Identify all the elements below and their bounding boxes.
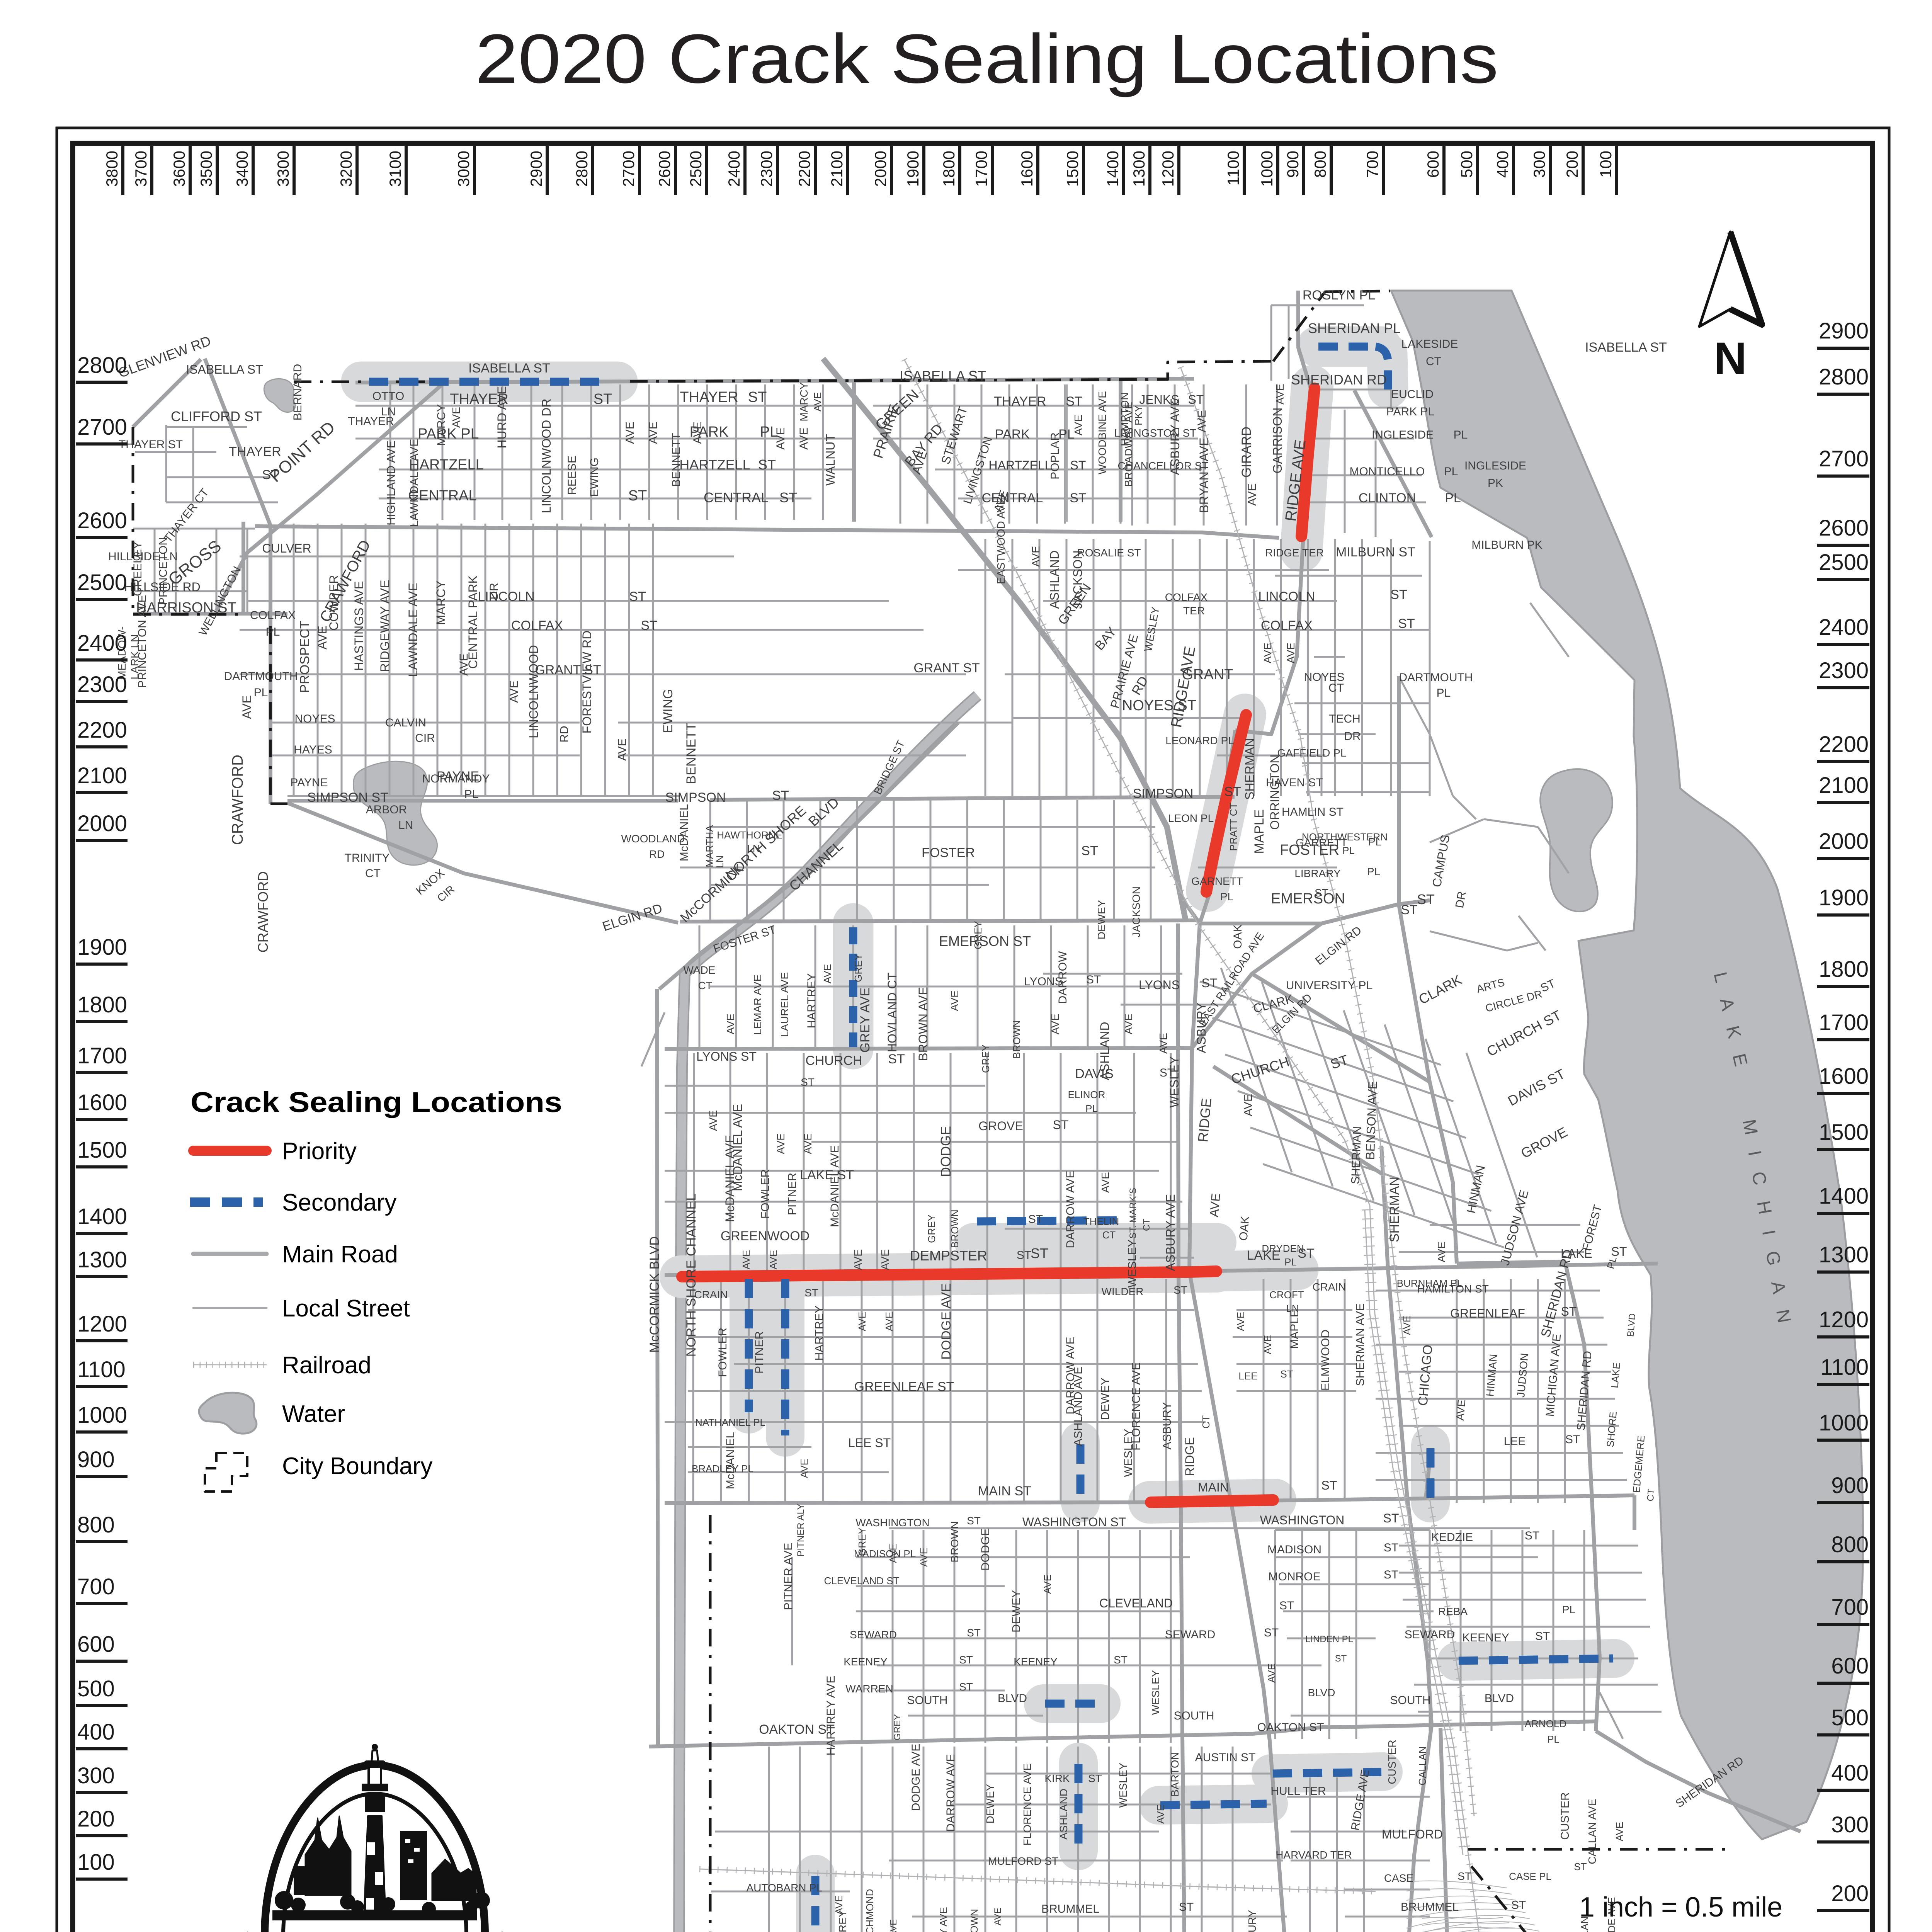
svg-text:CHURCH: CHURCH [805, 1053, 862, 1068]
svg-text:WESLEY: WESLEY [1167, 1056, 1181, 1107]
svg-text:PL: PL [1562, 1604, 1575, 1616]
svg-text:PAYNE: PAYNE [290, 776, 328, 789]
svg-text:MULFORD ST: MULFORD ST [988, 1855, 1058, 1867]
svg-text:ST: ST [1401, 903, 1417, 917]
svg-text:COLFAX: COLFAX [1261, 618, 1313, 633]
svg-text:2000: 2000 [77, 811, 127, 836]
svg-text:AVE: AVE [798, 427, 810, 450]
svg-text:AVE: AVE [1285, 643, 1297, 663]
svg-text:1 inch = 0.5 mile: 1 inch = 0.5 mile [1579, 1892, 1782, 1923]
svg-text:Railroad: Railroad [282, 1352, 371, 1379]
svg-text:WASHINGTON: WASHINGTON [1260, 1513, 1345, 1527]
svg-text:CT: CT [1141, 1219, 1152, 1231]
svg-text:AVE: AVE [852, 1249, 864, 1270]
svg-text:LARK LN: LARK LN [129, 634, 141, 680]
svg-text:GREY AVE: GREY AVE [858, 988, 872, 1053]
svg-text:TRINITY: TRINITY [345, 852, 390, 864]
svg-text:2800: 2800 [1819, 364, 1869, 389]
svg-text:BRUMMEL: BRUMMEL [1401, 1901, 1459, 1913]
svg-text:LAKE ST: LAKE ST [800, 1168, 854, 1182]
svg-text:2020 Crack Sealing Locations: 2020 Crack Sealing Locations [475, 20, 1498, 98]
svg-text:PL: PL [1437, 687, 1451, 699]
svg-text:600: 600 [77, 1632, 115, 1657]
svg-text:ROSALIE ST: ROSALIE ST [1077, 547, 1141, 559]
svg-text:DR: DR [1344, 730, 1361, 743]
svg-text:ST: ST [1088, 1772, 1102, 1784]
svg-text:COWPER: COWPER [327, 575, 341, 631]
svg-text:McDANIEL AVE: McDANIEL AVE [723, 1135, 737, 1222]
svg-text:600: 600 [1424, 151, 1442, 178]
svg-text:LIBRARY: LIBRARY [1294, 867, 1341, 879]
svg-text:CT: CT [1200, 1415, 1212, 1429]
svg-text:400: 400 [1831, 1760, 1869, 1786]
svg-text:REESE: REESE [566, 456, 578, 495]
svg-text:ISABELLA ST: ISABELLA ST [186, 362, 263, 376]
svg-text:2100: 2100 [77, 763, 127, 788]
svg-text:AVE: AVE [1454, 1399, 1468, 1421]
svg-text:ORRINGTON: ORRINGTON [1268, 755, 1282, 830]
svg-text:CALVIN: CALVIN [385, 716, 426, 729]
svg-text:BENSON AVE: BENSON AVE [1363, 1081, 1379, 1160]
svg-text:UNIVERSITY PL: UNIVERSITY PL [1286, 979, 1373, 992]
svg-text:THAYER: THAYER [348, 415, 394, 428]
svg-text:PL: PL [1444, 465, 1458, 478]
svg-text:LAUREL AVE: LAUREL AVE [779, 972, 791, 1037]
svg-text:500: 500 [1458, 151, 1476, 178]
svg-text:ISABELLA ST: ISABELLA ST [1585, 340, 1667, 355]
svg-text:ST: ST [1611, 1245, 1627, 1259]
svg-text:HARVARD TER: HARVARD TER [1276, 1849, 1352, 1861]
svg-text:AVE: AVE [856, 1312, 868, 1331]
svg-text:AVE: AVE [616, 738, 629, 761]
svg-text:SHERIDAN RD: SHERIDAN RD [1291, 372, 1387, 388]
svg-text:LAWNDALE AVE: LAWNDALE AVE [408, 439, 421, 527]
svg-text:CRAWFORD: CRAWFORD [229, 755, 246, 845]
svg-text:RICHMOND: RICHMOND [864, 1889, 876, 1932]
svg-text:WILDER: WILDER [1102, 1286, 1144, 1298]
svg-text:3300: 3300 [274, 151, 292, 187]
svg-text:PKY: PKY [1133, 405, 1144, 425]
svg-text:HARTZELL: HARTZELL [988, 458, 1051, 472]
svg-text:LEON PL: LEON PL [1168, 812, 1214, 824]
svg-text:MAIN ST: MAIN ST [978, 1484, 1031, 1498]
svg-text:ST: ST [1114, 1654, 1128, 1666]
svg-text:HARTREY: HARTREY [805, 973, 818, 1029]
svg-text:KIRK: KIRK [1044, 1772, 1070, 1784]
svg-text:3600: 3600 [170, 151, 188, 187]
svg-text:AVE: AVE [1274, 384, 1286, 405]
svg-text:1000: 1000 [1258, 151, 1276, 187]
svg-text:ST: ST [801, 1076, 815, 1088]
svg-text:BROWN: BROWN [949, 1209, 961, 1248]
svg-text:PL: PL [254, 686, 268, 699]
svg-text:AVE: AVE [798, 1459, 810, 1478]
svg-text:BLVD: BLVD [1308, 1687, 1335, 1699]
svg-text:SHERMAN: SHERMAN [1387, 1177, 1402, 1242]
svg-text:PL: PL [1547, 1733, 1560, 1745]
svg-text:SEWARD: SEWARD [1165, 1628, 1216, 1641]
svg-text:GREY: GREY [926, 1214, 937, 1243]
svg-text:CT: CT [1102, 1229, 1116, 1241]
svg-text:AVE: AVE [1049, 1014, 1061, 1034]
svg-text:ST: ST [1280, 1368, 1293, 1380]
svg-text:GREY: GREY [980, 1044, 992, 1073]
svg-text:1100: 1100 [77, 1357, 126, 1382]
svg-text:PRATT CT: PRATT CT [1228, 803, 1239, 851]
svg-text:2800: 2800 [77, 353, 127, 378]
svg-text:2300: 2300 [1819, 658, 1869, 683]
svg-text:CROFT: CROFT [1269, 1289, 1304, 1301]
svg-text:BROWN AVE: BROWN AVE [916, 987, 930, 1061]
svg-text:100: 100 [1597, 151, 1615, 178]
svg-text:WESLEY: WESLEY [1126, 1239, 1139, 1287]
svg-text:CLEVELAND ST: CLEVELAND ST [824, 1575, 899, 1587]
svg-text:1400: 1400 [77, 1204, 127, 1229]
svg-text:ST: ST [1081, 844, 1098, 858]
svg-text:GREY: GREY [972, 921, 984, 949]
svg-text:GREENWOOD: GREENWOOD [721, 1229, 810, 1243]
svg-text:McCORMICK BLVD: McCORMICK BLVD [647, 1236, 662, 1353]
svg-text:ST: ST [1398, 616, 1415, 631]
svg-text:NATHANIEL PL: NATHANIEL PL [695, 1417, 765, 1428]
svg-text:2900: 2900 [527, 151, 545, 187]
svg-text:DEMPSTER: DEMPSTER [910, 1248, 987, 1264]
svg-text:PROSPECT: PROSPECT [298, 621, 312, 693]
svg-text:2200: 2200 [1819, 732, 1869, 757]
svg-text:RIDGE TER: RIDGE TER [1265, 547, 1324, 559]
svg-text:ELINOR: ELINOR [1068, 1089, 1105, 1100]
svg-text:AVE: AVE [1235, 1312, 1247, 1331]
svg-text:EUCLID: EUCLID [1391, 388, 1434, 401]
svg-text:PL: PL [1445, 491, 1461, 505]
svg-text:PARK PL: PARK PL [1386, 405, 1435, 418]
svg-text:BLVD: BLVD [998, 1692, 1027, 1705]
svg-text:AVE: AVE [1614, 1822, 1625, 1841]
svg-text:ST: ST [1031, 1245, 1048, 1261]
svg-text:AVE: AVE [450, 407, 462, 428]
svg-text:JACKSON: JACKSON [1130, 886, 1142, 937]
svg-text:DARTMOUTH: DARTMOUTH [224, 670, 298, 683]
svg-text:900: 900 [77, 1447, 115, 1472]
svg-text:AVE: AVE [802, 1133, 814, 1154]
svg-text:AVE: AVE [1196, 410, 1208, 432]
svg-text:ST: ST [1574, 1861, 1587, 1872]
svg-text:300: 300 [1831, 1812, 1869, 1837]
svg-text:SHERMAN AVE: SHERMAN AVE [1354, 1303, 1367, 1386]
svg-text:ST: ST [1383, 1511, 1399, 1525]
svg-text:1200: 1200 [1159, 151, 1177, 187]
svg-text:CUSTER: CUSTER [1559, 1792, 1571, 1840]
svg-text:WOODLAND: WOODLAND [621, 833, 685, 845]
svg-text:ST: ST [1384, 1541, 1398, 1554]
svg-text:HAYES: HAYES [294, 743, 332, 756]
svg-text:AVE: AVE [918, 1548, 930, 1567]
svg-text:ST: ST [1384, 1568, 1398, 1581]
svg-text:THAYER: THAYER [680, 389, 738, 405]
svg-text:MAPLE: MAPLE [1252, 809, 1267, 854]
svg-text:KEENEY: KEENEY [844, 1656, 888, 1668]
svg-text:AVE: AVE [1246, 483, 1259, 506]
svg-text:BROWN: BROWN [949, 1521, 961, 1562]
svg-text:MARCY: MARCY [435, 404, 448, 446]
svg-text:1700: 1700 [77, 1043, 127, 1068]
svg-text:GAFFIELD PL: GAFFIELD PL [1277, 747, 1347, 759]
svg-text:WARREN: WARREN [845, 1683, 893, 1695]
svg-text:900: 900 [1284, 151, 1302, 178]
svg-text:DARROW AVE: DARROW AVE [944, 1754, 957, 1832]
svg-text:1600: 1600 [1819, 1064, 1869, 1089]
svg-text:SIMPSON: SIMPSON [1133, 786, 1194, 801]
svg-text:2300: 2300 [757, 151, 776, 187]
svg-text:1900: 1900 [904, 151, 922, 187]
svg-text:AVE: AVE [1435, 1242, 1447, 1262]
svg-text:BLVD: BLVD [1625, 1313, 1638, 1337]
svg-text:SIMPSON ST: SIMPSON ST [307, 790, 388, 805]
svg-text:ST: ST [1525, 1529, 1539, 1542]
svg-text:ST: ST [1086, 973, 1101, 986]
svg-text:100: 100 [77, 1850, 115, 1875]
svg-text:LEMAR AVE: LEMAR AVE [752, 975, 764, 1035]
svg-text:PL: PL [1284, 1256, 1297, 1268]
svg-text:NORTH SHORE CHANNEL: NORTH SHORE CHANNEL [684, 1194, 699, 1357]
svg-text:HARRISON ST: HARRISON ST [136, 600, 236, 616]
svg-text:ST: ST [758, 457, 776, 473]
svg-text:CRAIN: CRAIN [694, 1289, 728, 1301]
svg-text:ST: ST [1028, 1213, 1043, 1226]
svg-text:1700: 1700 [972, 151, 990, 187]
svg-text:AVE: AVE [1030, 546, 1042, 567]
svg-text:LINDEN PL: LINDEN PL [1305, 1634, 1353, 1645]
svg-text:PK: PK [1488, 477, 1503, 490]
svg-text:DODGE AVE: DODGE AVE [939, 1283, 954, 1360]
svg-text:PAYNE: PAYNE [437, 769, 479, 784]
svg-text:AVE: AVE [1262, 643, 1274, 663]
svg-text:GROVE: GROVE [978, 1119, 1023, 1133]
svg-text:MONROE: MONROE [1269, 1570, 1321, 1583]
svg-text:800: 800 [1311, 151, 1329, 178]
svg-text:HAMLIN ST: HAMLIN ST [1282, 806, 1344, 818]
svg-text:1100: 1100 [1820, 1355, 1869, 1380]
svg-text:MADISON PL: MADISON PL [854, 1548, 916, 1560]
svg-text:PITNER: PITNER [753, 1331, 766, 1374]
svg-text:AVE: AVE [1099, 1172, 1111, 1193]
svg-text:SOUTH: SOUTH [1174, 1709, 1214, 1722]
svg-text:ST: ST [1070, 458, 1086, 472]
svg-text:ISABELLA ST: ISABELLA ST [900, 368, 986, 384]
svg-text:3500: 3500 [197, 151, 215, 187]
svg-text:ST. MARK’S: ST. MARK’S [1128, 1188, 1138, 1239]
svg-text:AVE: AVE [724, 1014, 736, 1034]
svg-text:WESLEY: WESLEY [1150, 1670, 1162, 1715]
svg-text:MAIN: MAIN [1198, 1480, 1229, 1494]
svg-text:AUTOBARN PL: AUTOBARN PL [746, 1882, 822, 1894]
svg-text:2400: 2400 [1819, 615, 1869, 640]
svg-text:ST: ST [629, 589, 646, 604]
svg-text:BARTON: BARTON [1169, 1752, 1181, 1797]
svg-text:KEENEY: KEENEY [1014, 1656, 1058, 1668]
svg-text:ST: ST [959, 1681, 973, 1693]
svg-text:800: 800 [1831, 1532, 1869, 1557]
svg-text:DODGE: DODGE [979, 1528, 992, 1571]
svg-text:AVE: AVE [1262, 1335, 1274, 1354]
svg-text:COLFAX: COLFAX [250, 609, 296, 622]
svg-text:TECH: TECH [1329, 713, 1361, 725]
svg-text:MAPLE: MAPLE [1288, 1310, 1301, 1349]
svg-text:AVE: AVE [949, 990, 961, 1011]
svg-text:RD: RD [558, 726, 571, 742]
svg-text:ASBURY: ASBURY [1246, 1910, 1258, 1932]
svg-text:AVE: AVE [707, 1110, 719, 1131]
svg-text:BROWN: BROWN [968, 1909, 980, 1932]
svg-text:ST: ST [1224, 784, 1241, 799]
svg-text:1400: 1400 [1819, 1184, 1869, 1209]
svg-text:1600: 1600 [1018, 151, 1036, 187]
svg-text:OAKTON ST: OAKTON ST [759, 1722, 835, 1737]
svg-text:ASHLAND AVE: ASHLAND AVE [1072, 1367, 1085, 1446]
svg-text:3200: 3200 [337, 151, 355, 187]
svg-text:DODGE AVE: DODGE AVE [910, 1744, 922, 1811]
svg-text:DARTMOUTH: DARTMOUTH [1399, 671, 1473, 684]
svg-text:RD: RD [649, 848, 665, 860]
svg-text:GARNETT: GARNETT [1191, 875, 1243, 887]
svg-text:ST: ST [888, 1052, 905, 1066]
svg-text:ST: ST [967, 1627, 981, 1639]
svg-text:SHERMAN: SHERMAN [1349, 1126, 1364, 1184]
svg-text:1600: 1600 [77, 1090, 127, 1115]
svg-text:LAWNDALE AVE: LAWNDALE AVE [406, 583, 420, 677]
svg-text:ARNOLD: ARNOLD [1525, 1718, 1566, 1730]
svg-text:LYONS: LYONS [1139, 978, 1180, 992]
svg-text:McDANIEL AVE: McDANIEL AVE [828, 1145, 841, 1227]
svg-text:MARCY: MARCY [798, 382, 810, 421]
svg-text:AUSTIN ST: AUSTIN ST [1195, 1751, 1256, 1764]
svg-text:AVE: AVE [1207, 1193, 1223, 1218]
svg-text:AVE: AVE [508, 680, 520, 703]
svg-text:3800: 3800 [103, 151, 121, 187]
svg-text:ST: ST [1335, 1653, 1347, 1664]
svg-text:TER: TER [1183, 605, 1205, 617]
svg-text:City Boundary: City Boundary [282, 1453, 432, 1480]
svg-text:ST: ST [1202, 976, 1218, 990]
svg-text:3700: 3700 [132, 151, 150, 187]
svg-text:POPLAR: POPLAR [1049, 432, 1061, 480]
svg-text:GIRARD: GIRARD [1239, 427, 1254, 478]
svg-text:OAKTON ST: OAKTON ST [1257, 1721, 1324, 1734]
svg-text:600: 600 [1831, 1653, 1869, 1679]
svg-text:SEWARD: SEWARD [850, 1629, 897, 1641]
svg-text:700: 700 [1363, 151, 1381, 178]
svg-text:THAYER ST: THAYER ST [119, 438, 183, 451]
svg-text:Local Street: Local Street [282, 1295, 410, 1322]
svg-text:2500: 2500 [1819, 550, 1869, 575]
svg-text:LN: LN [398, 819, 413, 832]
svg-text:HIGHLAND AVE: HIGHLAND AVE [385, 440, 398, 526]
svg-text:BRYANT AVE: BRYANT AVE [1197, 437, 1211, 513]
svg-text:400: 400 [77, 1719, 115, 1745]
svg-text:800: 800 [77, 1512, 115, 1537]
svg-text:GREY: GREY [852, 954, 864, 982]
svg-text:ST: ST [779, 490, 797, 505]
svg-text:LN: LN [714, 855, 726, 868]
svg-text:CIR: CIR [415, 732, 435, 745]
svg-text:ST: ST [1417, 891, 1435, 907]
svg-text:SHERIDAN PL: SHERIDAN PL [1308, 320, 1401, 336]
svg-text:AVE: AVE [775, 1133, 787, 1154]
svg-text:AVE: AVE [888, 1919, 899, 1932]
svg-text:McDANIEL: McDANIEL [678, 804, 690, 861]
svg-text:1800: 1800 [940, 151, 958, 187]
svg-text:CULVER: CULVER [262, 541, 311, 555]
svg-text:1900: 1900 [77, 935, 127, 960]
svg-text:1400: 1400 [1104, 151, 1122, 187]
svg-text:DEWEY: DEWEY [1095, 900, 1107, 939]
svg-text:GRANT ST: GRANT ST [913, 661, 980, 675]
svg-text:AVE: AVE [691, 422, 704, 444]
svg-text:CT: CT [698, 980, 712, 992]
svg-text:GREY: GREY [892, 1714, 903, 1740]
svg-text:FORESTVIEW RD: FORESTVIEW RD [580, 631, 594, 734]
svg-text:CLEVELAND: CLEVELAND [1099, 1596, 1173, 1610]
svg-text:FOWLER: FOWLER [716, 1328, 729, 1377]
svg-text:FOSTER: FOSTER [1280, 842, 1339, 858]
svg-text:ST: ST [1017, 1249, 1031, 1262]
svg-text:LINCOLN: LINCOLN [478, 589, 534, 604]
svg-text:1300: 1300 [1130, 151, 1148, 187]
svg-text:CALLAN: CALLAN [1417, 1746, 1428, 1785]
svg-text:PRINCETON: PRINCETON [157, 537, 170, 605]
svg-text:AVE: AVE [821, 964, 833, 983]
svg-text:MARCY: MARCY [434, 580, 448, 625]
svg-text:2700: 2700 [77, 415, 127, 440]
svg-text:BLVD: BLVD [1485, 1692, 1514, 1705]
svg-text:BENNETT: BENNETT [670, 433, 683, 487]
svg-text:ST: ST [748, 389, 767, 405]
svg-text:BRUMMEL: BRUMMEL [1041, 1903, 1099, 1915]
svg-text:EASTWOOD AVE: EASTWOOD AVE [995, 498, 1007, 584]
svg-text:2600: 2600 [77, 508, 127, 533]
svg-text:700: 700 [77, 1574, 115, 1599]
svg-text:LINCOLNWOOD: LINCOLNWOOD [527, 645, 541, 738]
svg-text:PITNER: PITNER [786, 1173, 799, 1215]
svg-text:NOYES: NOYES [294, 713, 335, 725]
svg-text:2800: 2800 [573, 151, 591, 187]
svg-text:1900: 1900 [1819, 885, 1869, 910]
svg-text:EWING: EWING [661, 689, 675, 733]
svg-text:GREELEY: GREELEY [131, 541, 144, 596]
svg-text:AVE: AVE [1122, 1014, 1134, 1034]
svg-text:SEWARD: SEWARD [1405, 1628, 1455, 1641]
svg-text:COLFAX: COLFAX [511, 618, 563, 633]
svg-text:AVE: AVE [767, 1250, 779, 1269]
svg-text:3100: 3100 [386, 151, 404, 187]
svg-text:2600: 2600 [1819, 515, 1869, 541]
svg-text:RIDGEWAY AVE: RIDGEWAY AVE [378, 580, 392, 672]
svg-text:2400: 2400 [725, 151, 743, 187]
svg-text:CUSTER: CUSTER [1386, 1740, 1398, 1784]
svg-text:ASHLAND: ASHLAND [1098, 1022, 1112, 1080]
svg-text:SHERMAN: SHERMAN [1243, 738, 1257, 800]
svg-text:Priority: Priority [282, 1138, 357, 1165]
svg-text:SIMPSON: SIMPSON [665, 790, 726, 805]
svg-text:OAK: OAK [1237, 1216, 1252, 1241]
svg-text:HOVLAND CT: HOVLAND CT [885, 973, 899, 1052]
svg-text:LEE: LEE [1238, 1370, 1257, 1382]
svg-text:2500: 2500 [687, 151, 705, 187]
svg-text:300: 300 [1530, 151, 1548, 178]
svg-text:ST: ST [967, 1515, 981, 1527]
svg-text:DEWEY: DEWEY [1010, 1590, 1023, 1633]
svg-text:ST: ST [959, 1654, 973, 1666]
